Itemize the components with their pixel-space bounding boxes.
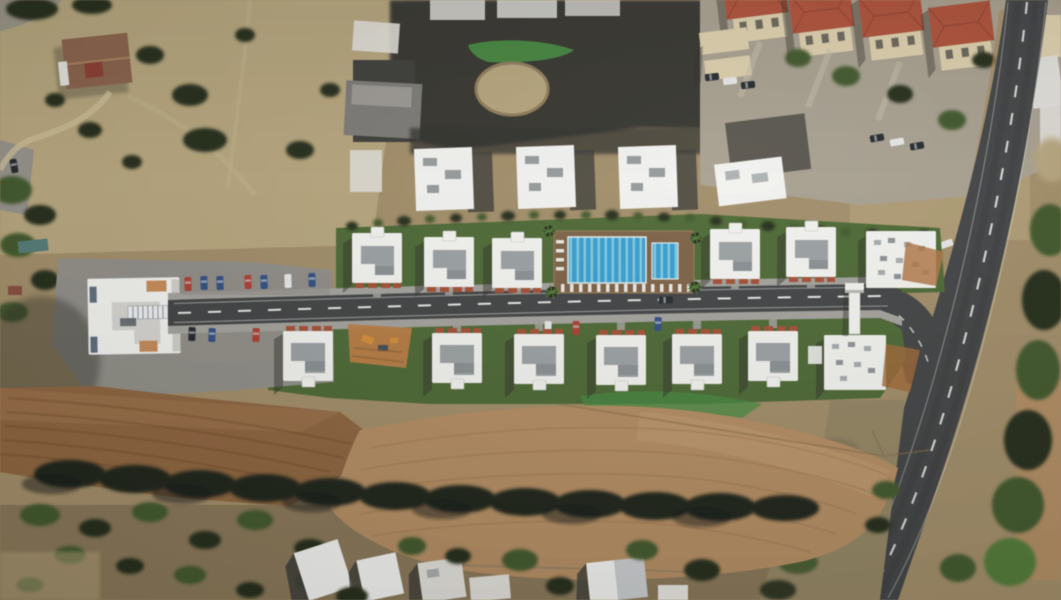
car <box>260 275 267 289</box>
car <box>244 275 251 289</box>
car <box>216 276 223 290</box>
rooftop <box>497 0 557 18</box>
car <box>208 328 215 342</box>
tree <box>984 538 1036 586</box>
existing-house <box>56 33 133 90</box>
aerial-site-plan <box>0 0 1061 600</box>
recess <box>90 337 97 353</box>
apartment-block <box>516 145 596 210</box>
construction-patch <box>348 324 412 368</box>
apartment-block <box>414 147 494 212</box>
tree <box>992 477 1044 533</box>
car-on-internal-road <box>659 296 673 303</box>
tree <box>1004 410 1052 470</box>
car <box>184 277 191 291</box>
rooftop <box>352 20 400 53</box>
roof-pergola <box>139 341 157 352</box>
car <box>200 276 207 290</box>
rooftop <box>430 0 485 20</box>
apartment-blocks-row <box>414 145 698 212</box>
tree <box>940 554 976 582</box>
rooftop <box>565 0 620 16</box>
entry <box>120 318 136 326</box>
car <box>308 273 315 287</box>
small-shed <box>8 286 22 295</box>
shrub <box>760 580 796 600</box>
machine <box>390 338 398 343</box>
round-dirt-court <box>476 63 548 115</box>
tower-cap-shade <box>845 290 864 293</box>
car <box>572 321 579 335</box>
car <box>252 328 259 342</box>
main-pool <box>568 237 646 283</box>
car <box>188 327 195 341</box>
tower-shaft <box>849 290 860 334</box>
car <box>284 274 291 288</box>
tree <box>1016 340 1060 400</box>
pool-area <box>542 224 703 299</box>
car <box>654 317 661 331</box>
recess <box>89 287 96 303</box>
roof-pergola <box>146 280 166 291</box>
kids-pool <box>652 243 678 279</box>
house-red-wing <box>84 61 103 78</box>
building <box>658 585 688 600</box>
apartment-block <box>618 145 698 210</box>
west-apartment-building <box>87 277 180 355</box>
rooftop <box>350 150 382 192</box>
building <box>469 574 511 600</box>
